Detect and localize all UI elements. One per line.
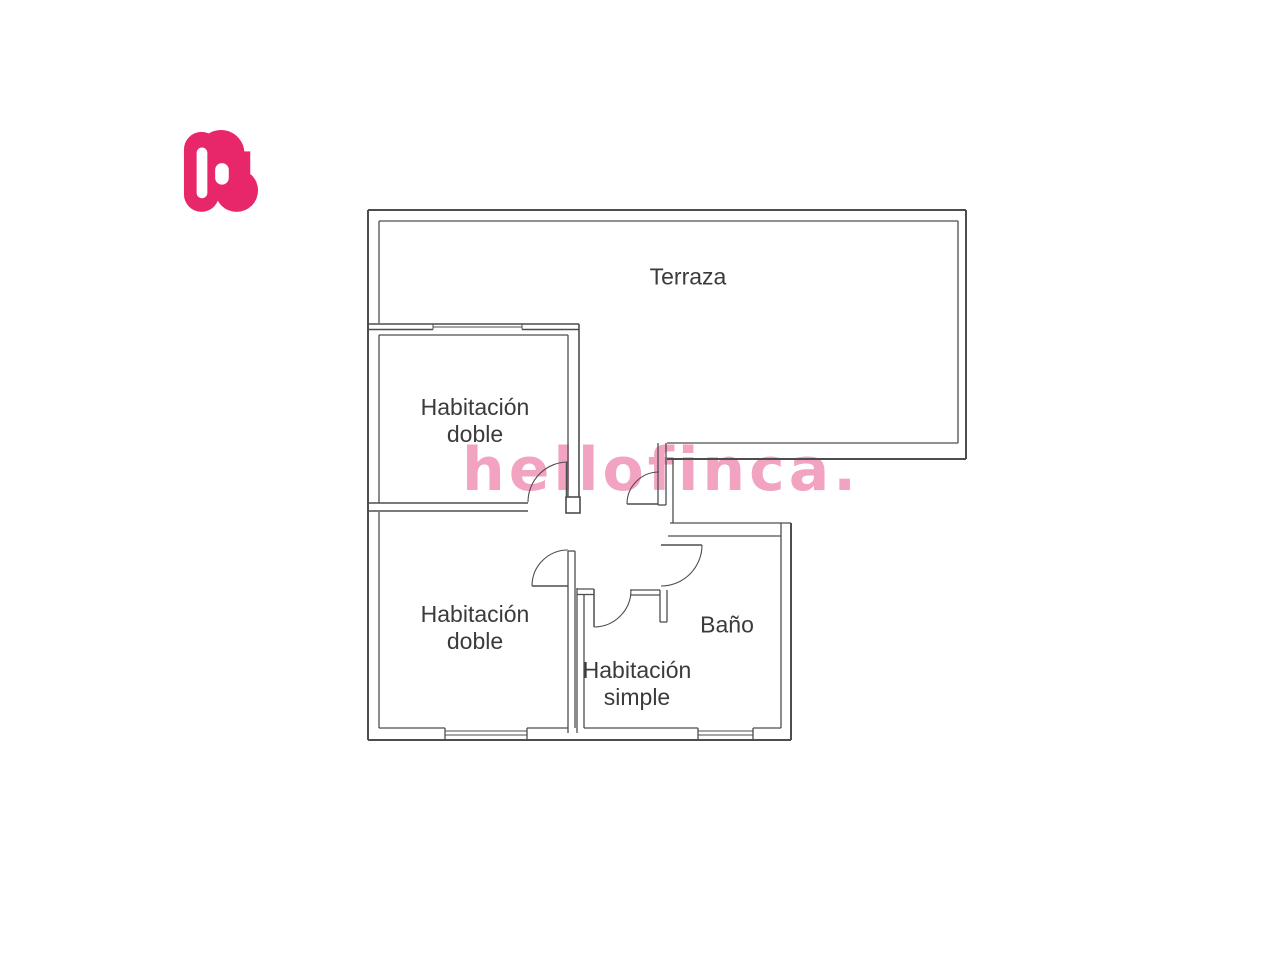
hallway-wall-stub	[658, 443, 673, 523]
bedrooms-divider-wall	[368, 503, 528, 511]
left-exterior-wall	[368, 210, 379, 740]
room-label-terraza: Terraza	[613, 264, 763, 291]
room-label-habitacion-simple: Habitación simple	[572, 657, 702, 711]
logo-letter-h	[184, 130, 258, 212]
single-bedroom-door	[594, 589, 631, 627]
bathroom-door	[661, 545, 702, 586]
terraza-bedroom-wall	[368, 324, 579, 335]
upper-bedroom-right-wall	[566, 324, 580, 513]
room-label-habitacion-doble-2: Habitación doble	[410, 601, 540, 655]
bottom-window-left	[445, 728, 527, 740]
terraza-door	[627, 472, 659, 504]
room-label-habitacion-doble-1: Habitación doble	[410, 394, 540, 448]
bottom-window-right	[698, 728, 753, 740]
terrace-window	[433, 324, 522, 330]
hellofinca-logo-icon	[182, 122, 260, 214]
bottom-exterior-wall	[368, 728, 791, 740]
room-label-bano: Baño	[652, 612, 802, 639]
lower-bedroom-door	[532, 550, 568, 586]
bathroom-top-wall	[668, 523, 791, 536]
floorplan-image: hellofinca.	[0, 0, 1280, 960]
upper-bedroom-door	[528, 462, 568, 502]
